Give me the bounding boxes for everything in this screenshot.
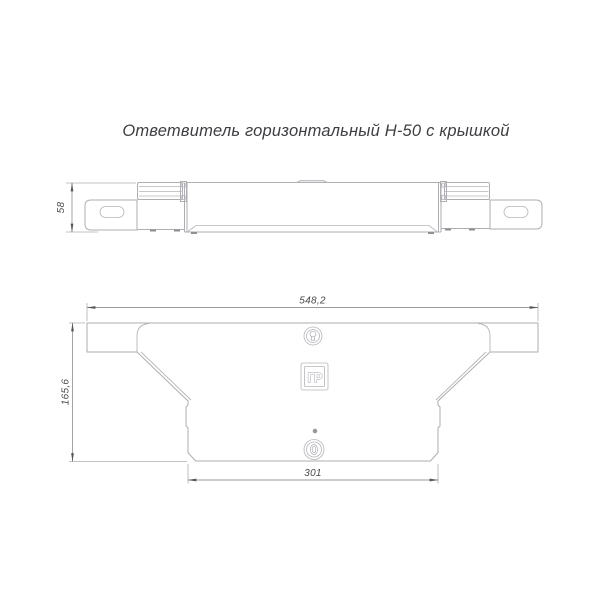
rivet-dot-icon <box>313 429 318 434</box>
dimension-58: 58 <box>56 183 136 232</box>
dimension-165: 165,6 <box>61 323 188 462</box>
dimension-301: 301 <box>188 464 438 484</box>
plan-outline <box>87 323 538 461</box>
right-diagonal-inner <box>436 352 486 400</box>
fastener-mark <box>150 230 156 232</box>
technical-drawing-svg: Ответвитель горизонтальный Н-50 с крышко… <box>0 0 600 600</box>
dimension-548: 548,2 <box>87 296 538 322</box>
left-bend-line <box>137 324 149 353</box>
dimension-301-label: 301 <box>304 468 322 479</box>
right-bend-line <box>478 324 490 353</box>
dimension-58-label: 58 <box>56 202 67 214</box>
fastener-mark <box>469 229 475 231</box>
right-flange-slot-icon <box>504 207 528 218</box>
fastener-mark <box>445 229 451 231</box>
fastener-mark <box>428 232 434 234</box>
fastener-mark <box>174 230 180 232</box>
left-flange-slot-icon <box>100 207 124 218</box>
left-diagonal-inner <box>141 352 191 400</box>
drawing-title: Ответвитель горизонтальный Н-50 с крышко… <box>122 122 509 140</box>
latch-top-icon <box>304 327 322 345</box>
logo-letters: ГР <box>307 370 322 385</box>
plan-view: ГР 548,2 165,6 301 <box>61 296 539 484</box>
fastener-mark <box>191 232 197 234</box>
latch-bottom-icon <box>304 440 324 460</box>
dimension-548-label: 548,2 <box>299 296 326 307</box>
side-view-body <box>137 181 490 234</box>
side-view: 58 <box>56 181 542 234</box>
right-flange-tab <box>490 200 542 229</box>
left-flange-tab <box>85 200 137 230</box>
inner-bottom-plate <box>188 226 437 232</box>
right-hinge-icon <box>441 182 490 202</box>
left-hinge-icon <box>138 182 187 202</box>
dimension-165-label: 165,6 <box>61 379 72 406</box>
drawing-canvas: Ответвитель горизонтальный Н-50 с крышко… <box>0 0 600 600</box>
manufacturer-logo: ГР <box>301 363 328 390</box>
